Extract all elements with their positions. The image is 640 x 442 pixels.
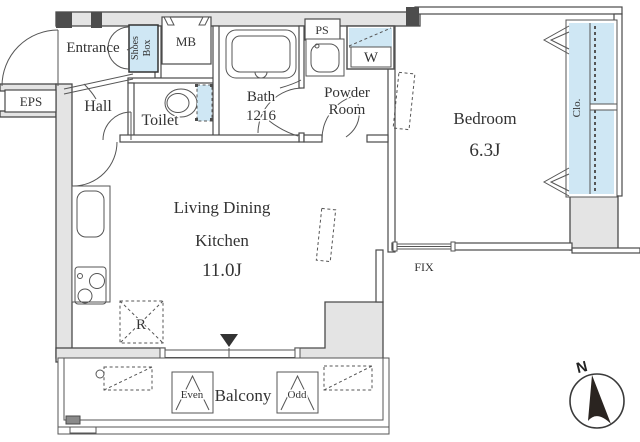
shoes-box-label-1: Shoes: [130, 36, 141, 60]
compass-north-label: N: [575, 358, 590, 377]
meter-box: MB: [162, 17, 211, 64]
balcony-drain-step: [70, 427, 96, 433]
mb-label: MB: [176, 34, 197, 49]
fridge-label: R: [136, 317, 146, 333]
compass: N: [570, 358, 624, 428]
floor-plan-page: EPS Entrance Shoes Box Hall MB PS: [0, 0, 640, 442]
odd-label: Odd: [288, 389, 307, 401]
hall-leader-line: [84, 84, 96, 99]
bath-leader-line: [280, 80, 301, 88]
wall-under-closet: [570, 196, 618, 250]
even-label: Even: [181, 389, 204, 401]
tank-tick-4: [210, 118, 213, 121]
room-label-entrance: Entrance: [66, 40, 120, 56]
bedroom-dashed-fixture: [393, 72, 415, 129]
shoes-box-label-2: Box: [142, 40, 153, 57]
pillar-top-center: [406, 7, 419, 26]
fix-window: FIX: [393, 242, 455, 274]
fix-window-cap-left: [393, 242, 397, 251]
entrance-door-arc: [2, 30, 58, 86]
room-label-balcony: Balcony: [215, 386, 272, 405]
washer-label: W: [364, 50, 379, 66]
closet-label: Clo.: [571, 98, 583, 117]
partition-bath-powder: [299, 26, 304, 88]
wall-top-bedroom: [415, 7, 622, 14]
eps-shaft: EPS: [5, 90, 56, 112]
balcony: Even Odd Balcony: [58, 358, 389, 434]
partition-ldk-top-1: [120, 135, 299, 142]
partition-bath-left: [213, 26, 219, 140]
pillar-top-left: [56, 12, 72, 28]
wall-left: [56, 84, 72, 358]
partition-ldk-top-2: [304, 135, 322, 142]
tank-tick-1: [195, 84, 198, 87]
wall-top: [56, 12, 420, 26]
room-label-bath: Bath: [247, 89, 276, 105]
partition-ldk-top-3: [367, 135, 388, 142]
toilet-tank: [197, 85, 212, 121]
tank-tick-3: [195, 118, 198, 121]
fix-window-label: FIX: [414, 260, 434, 274]
pipe-space: PS: [305, 19, 340, 40]
fridge-space: R: [120, 301, 163, 343]
room-label-bedroom-size: 6.3J: [469, 140, 500, 161]
washer-place: W: [347, 26, 394, 69]
partition-ldk-right-lower: [376, 250, 383, 302]
closet-folding-door-bottom-outer: [544, 168, 569, 196]
bath-room: Bath 1216: [226, 30, 303, 136]
room-label-powder-1: Powder: [324, 85, 370, 101]
closet-shelf: [590, 104, 617, 110]
room-label-bath-size: 1216: [246, 108, 277, 124]
room-label-powder-2: Room: [329, 102, 366, 118]
room-label-hall: Hall: [84, 98, 112, 115]
room-label-bedroom: Bedroom: [453, 109, 516, 128]
fix-window-cap-right: [451, 242, 455, 251]
ldk-dashed-fixture: [316, 208, 335, 261]
ps-label: PS: [315, 23, 328, 37]
closet: Clo.: [544, 20, 617, 197]
hanger-odd: Odd: [277, 372, 318, 413]
partition-bedroom-bottom-2: [453, 243, 572, 250]
ldk-dashed-rect: [316, 208, 335, 261]
bedroom: Bedroom 6.3J: [393, 72, 517, 161]
compass-needle: [588, 375, 611, 424]
wall-line-to-edge: [572, 248, 640, 253]
eps-label: EPS: [20, 94, 42, 109]
tank-tick-2: [210, 84, 213, 87]
hanger-even: Even: [172, 372, 213, 413]
pillar-entrance: [91, 12, 102, 28]
balcony-drain: [66, 416, 80, 424]
room-label-toilet: Toilet: [141, 112, 179, 129]
partition-toilet-top: [128, 78, 218, 83]
closet-folding-door-top-outer: [544, 26, 569, 54]
entry-direction-marker: [220, 334, 238, 347]
room-label-living-1: Living Dining: [174, 198, 271, 217]
room-label-living-2: Kitchen: [195, 231, 249, 250]
washbasin-counter: [306, 39, 344, 76]
hall-ldk-door-arc: [73, 142, 117, 186]
room-label-living-size: 11.0J: [202, 260, 242, 281]
bedroom-dashed-rect: [393, 72, 415, 129]
floor-plan-drawing: EPS Entrance Shoes Box Hall MB PS: [0, 0, 640, 442]
toilet-room: Toilet: [103, 84, 213, 140]
living-dining-kitchen: R Living Dining Kitchen 11.0J: [72, 142, 336, 371]
wall-ldk-bottom-right: [295, 302, 383, 362]
partition-bath-powder-low: [299, 133, 304, 142]
